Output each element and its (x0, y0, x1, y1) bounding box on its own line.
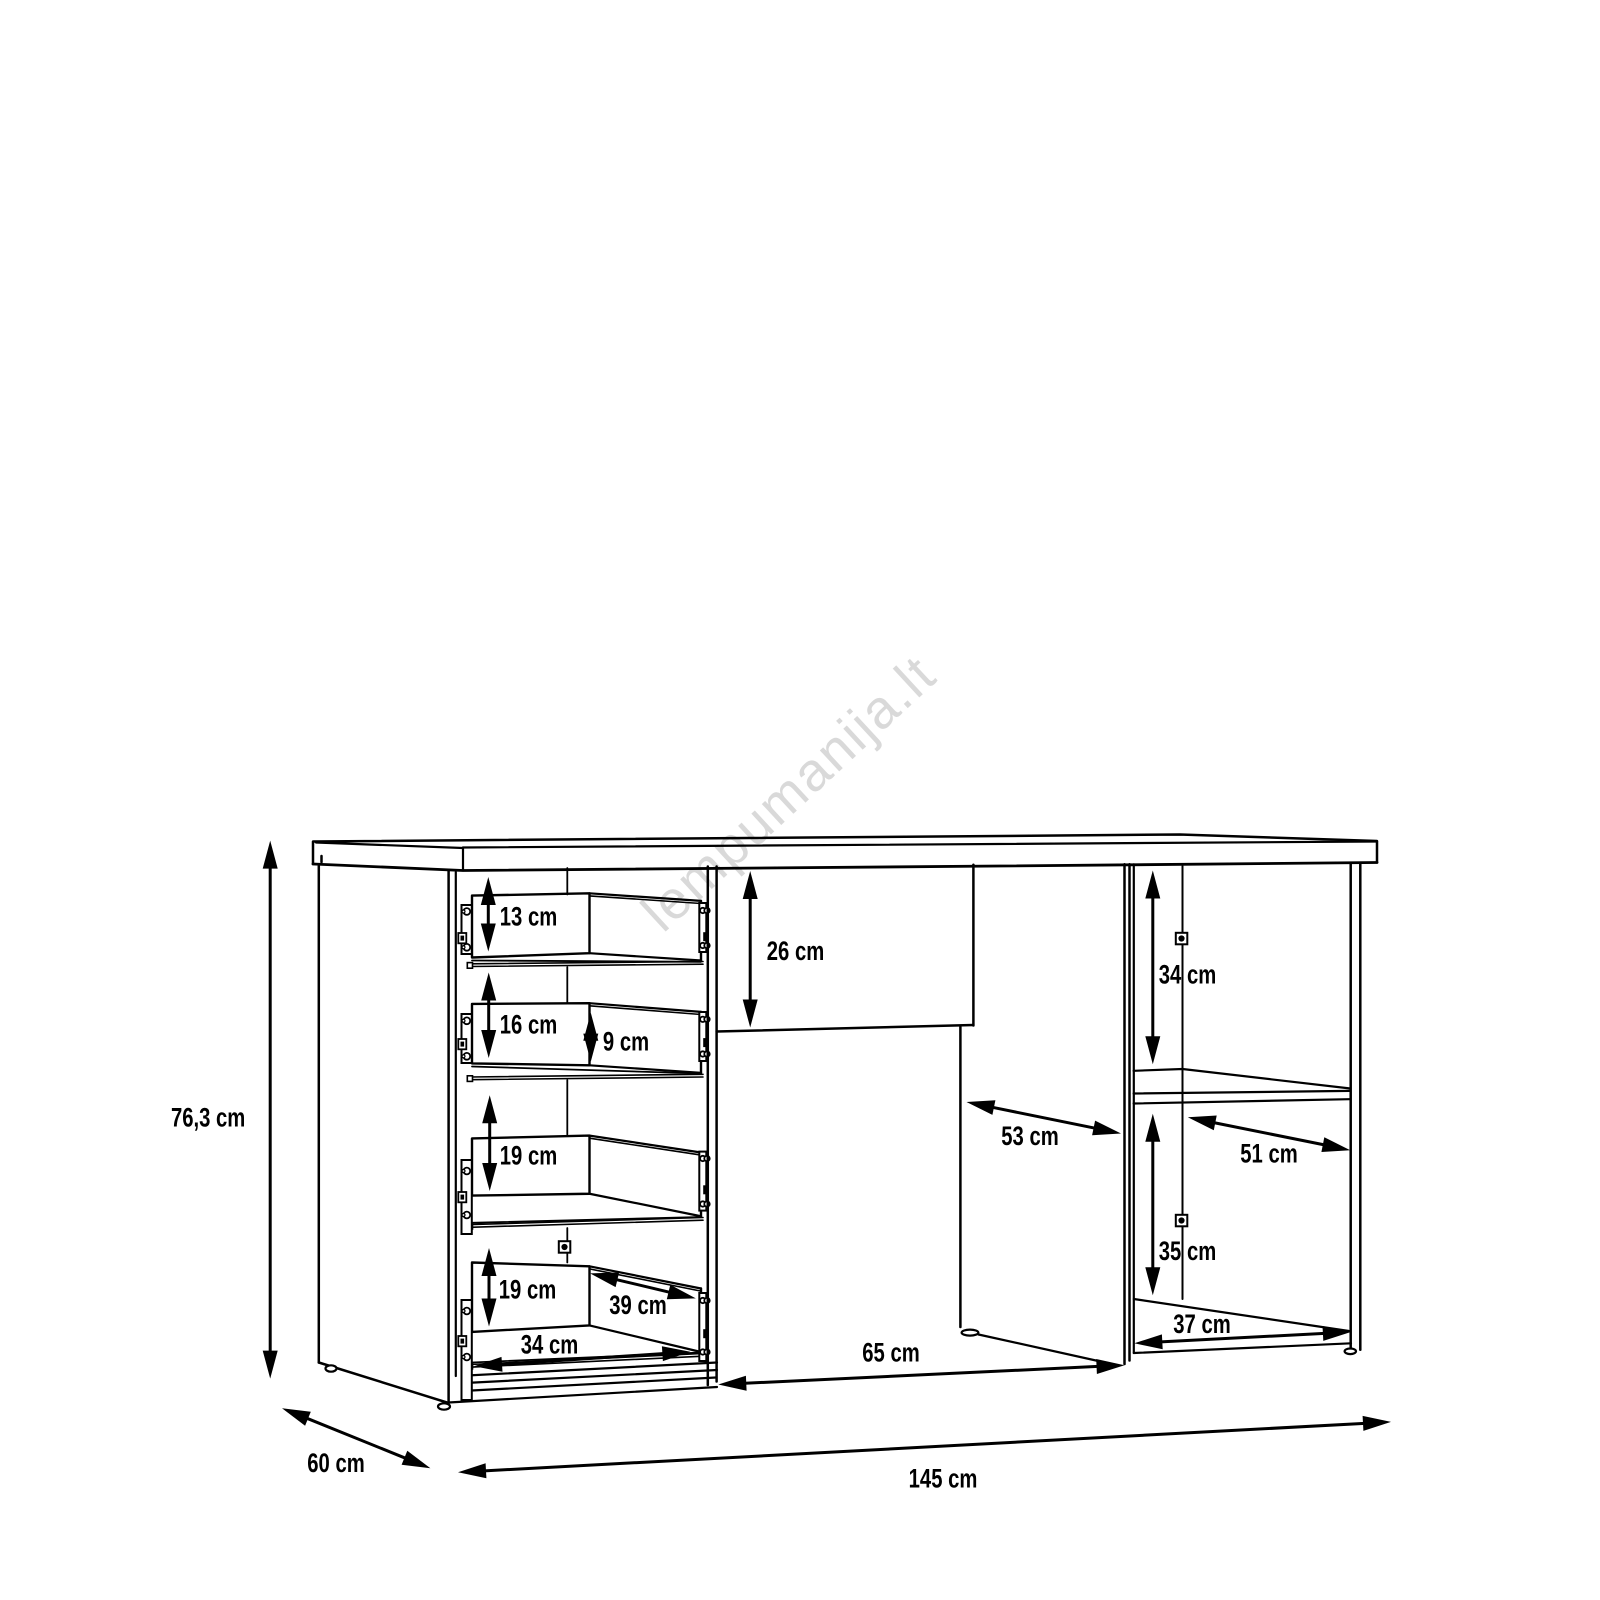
svg-text:26 cm: 26 cm (767, 936, 824, 967)
svg-text:34 cm: 34 cm (521, 1330, 578, 1361)
svg-text:60 cm: 60 cm (307, 1448, 364, 1479)
svg-text:76,3 cm: 76,3 cm (171, 1103, 245, 1134)
svg-text:34 cm: 34 cm (1159, 960, 1216, 991)
svg-text:16 cm: 16 cm (500, 1010, 557, 1041)
svg-text:35 cm: 35 cm (1159, 1236, 1216, 1267)
svg-text:51 cm: 51 cm (1240, 1139, 1297, 1170)
svg-text:145 cm: 145 cm (909, 1464, 978, 1495)
svg-text:19 cm: 19 cm (500, 1141, 557, 1172)
svg-text:39 cm: 39 cm (609, 1290, 666, 1321)
svg-text:9 cm: 9 cm (603, 1027, 649, 1058)
svg-text:65 cm: 65 cm (862, 1338, 919, 1369)
svg-text:13 cm: 13 cm (500, 902, 557, 933)
svg-text:53 cm: 53 cm (1001, 1121, 1058, 1152)
svg-text:37 cm: 37 cm (1173, 1309, 1230, 1340)
svg-text:19 cm: 19 cm (499, 1275, 556, 1306)
